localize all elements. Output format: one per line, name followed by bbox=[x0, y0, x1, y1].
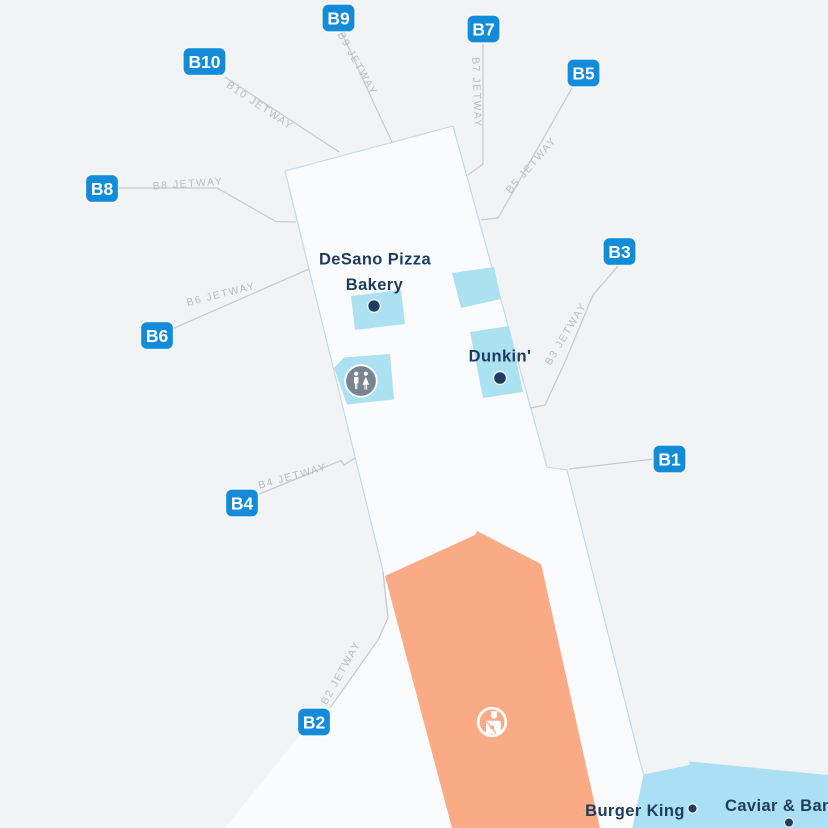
svg-text:B5: B5 bbox=[572, 64, 595, 84]
svg-text:Bakery: Bakery bbox=[346, 276, 404, 294]
svg-text:B7: B7 bbox=[472, 20, 494, 40]
svg-text:B6: B6 bbox=[146, 326, 169, 346]
svg-text:B1: B1 bbox=[658, 450, 681, 470]
svg-text:B9: B9 bbox=[327, 9, 350, 29]
svg-text:Burger King: Burger King bbox=[585, 802, 685, 820]
svg-text:B10: B10 bbox=[188, 52, 220, 72]
svg-text:B8: B8 bbox=[91, 179, 114, 199]
svg-text:Caviar & Banana: Caviar & Banana bbox=[725, 797, 828, 815]
svg-text:B2: B2 bbox=[303, 713, 326, 733]
svg-text:B3: B3 bbox=[608, 242, 631, 262]
svg-text:DeSano Pizza: DeSano Pizza bbox=[319, 251, 432, 269]
svg-text:B4: B4 bbox=[231, 494, 254, 514]
svg-text:Dunkin': Dunkin' bbox=[469, 348, 532, 366]
svg-text:B7 JETWAY: B7 JETWAY bbox=[469, 57, 483, 128]
